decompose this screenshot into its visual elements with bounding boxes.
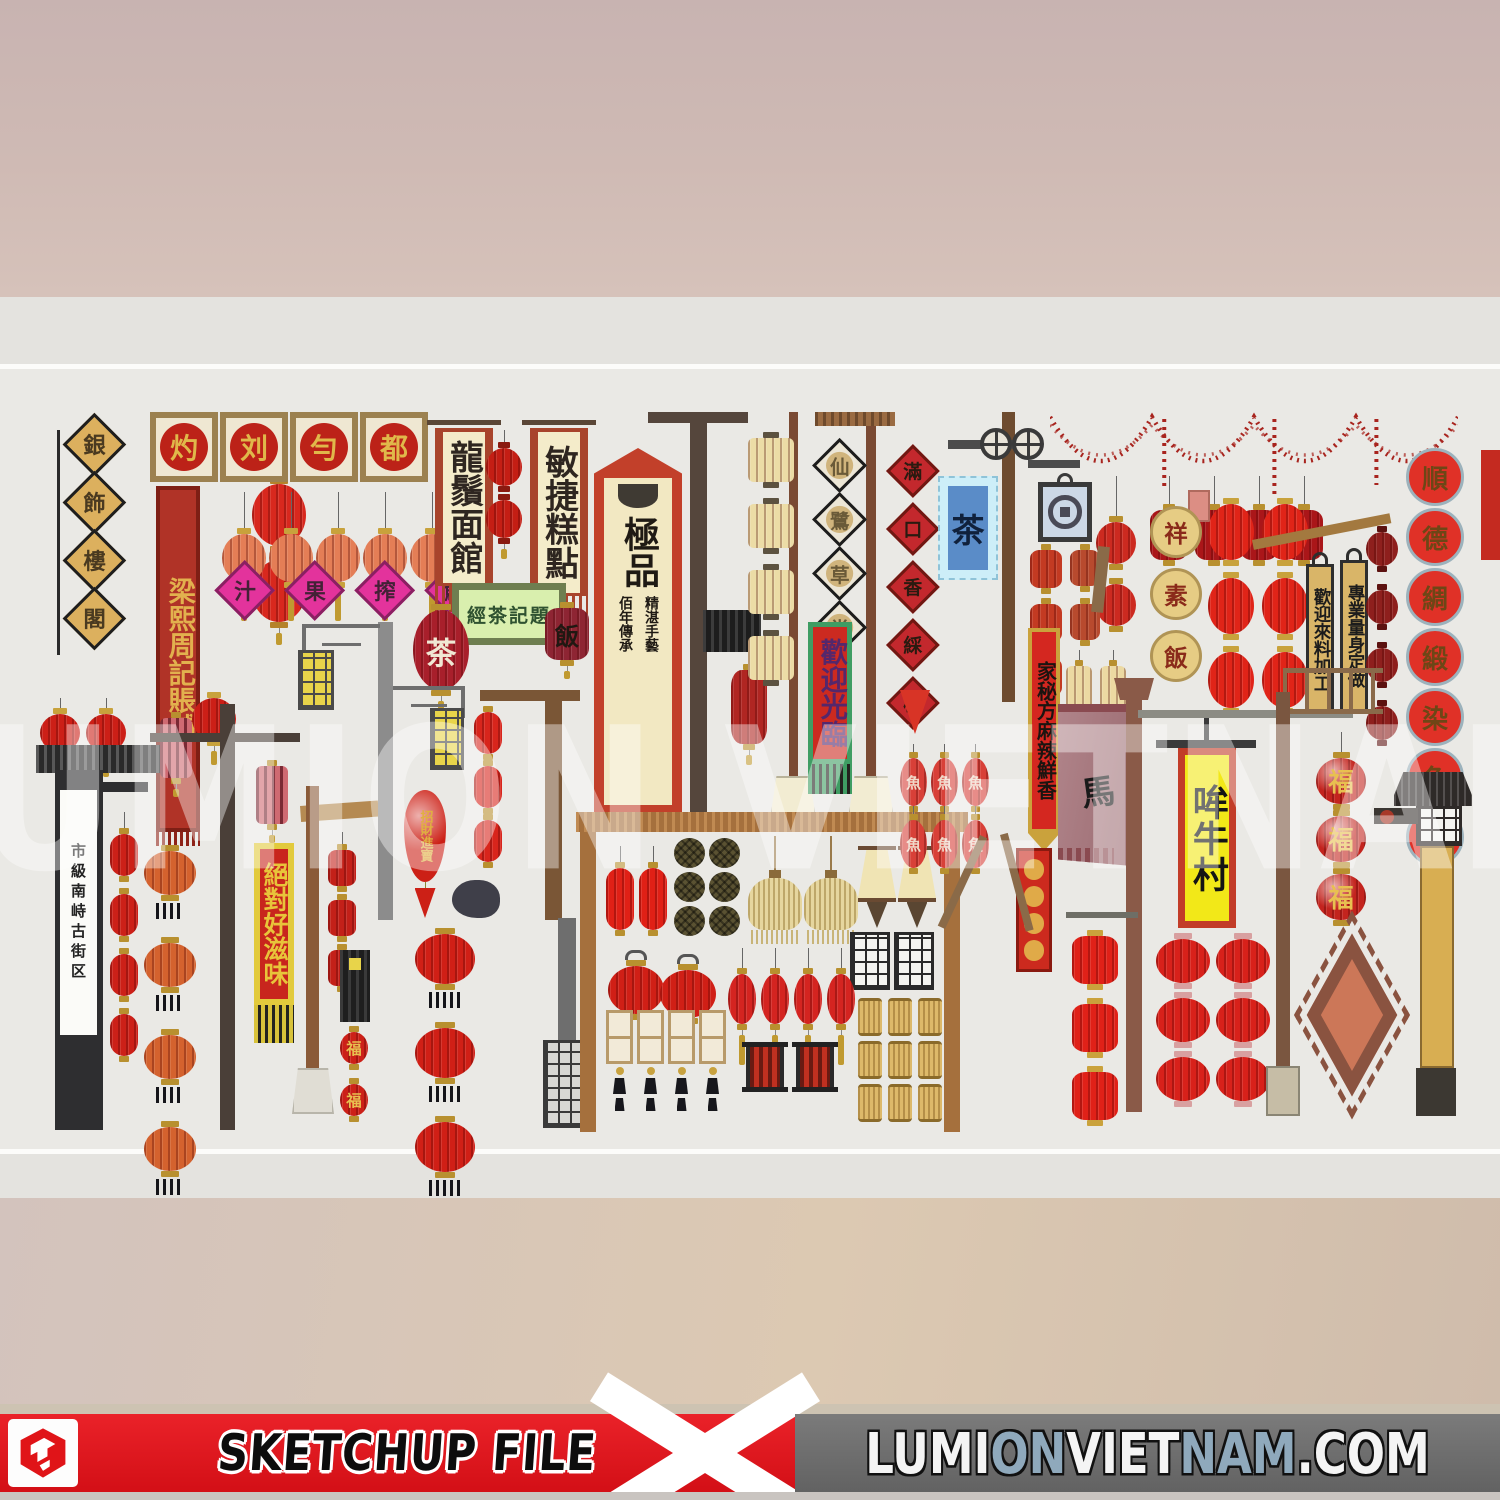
street-tower-arm (100, 782, 148, 792)
pagoda-roof (1394, 772, 1472, 806)
street-tower-panel: 市級南峙古街区 (60, 790, 97, 1035)
ornate-gray-pole (378, 622, 393, 920)
white-cage-pair (850, 932, 934, 990)
page: 銀飾樓閣灼刘勻都梁熙周記賬鋪汁果搾鮮龍鬚面館敏捷糕點經茶記題茶飯極品佰年傳承精湛… (0, 0, 1500, 1500)
brand-part: .COM (1297, 1420, 1430, 1486)
coin-wheel-b (1012, 428, 1044, 460)
right-barrel-chain (1072, 930, 1118, 1126)
pagoda-gold-pole (1420, 846, 1454, 1068)
fringe-chandelier-b (804, 836, 858, 944)
flavor-banner: 絕對好滋味 (254, 843, 294, 1043)
flag-pole (306, 786, 319, 1072)
display-post-left (580, 832, 596, 1132)
tall-brown-pole (1276, 692, 1290, 1070)
trapezoid-lantern-a (858, 846, 896, 928)
ladder-bars (1283, 668, 1383, 714)
teardrop-lantern: 招財進寶 (404, 790, 446, 918)
signal-lamp (340, 950, 370, 1022)
brand-part: NAM (1179, 1420, 1296, 1486)
pumpkin-col-right-b (1216, 933, 1270, 1107)
tall-pole-base (1266, 1066, 1300, 1116)
cage-lantern-b (430, 708, 464, 770)
fringe-chandelier-a (748, 836, 802, 944)
hatched-crossbar (815, 412, 895, 426)
curve-arm-pole (220, 704, 235, 1130)
site-brand: LUMION VIETNAM.COM (795, 1414, 1500, 1492)
bamboo-columns (858, 998, 942, 1122)
banner-hanger-rod (1204, 718, 1209, 742)
paper-box-row (606, 1010, 726, 1111)
pagoda-panel (1416, 806, 1462, 846)
decoration-collection: 銀飾樓閣灼刘勻都梁熙周記賬鋪汁果搾鮮龍鬚面館敏捷糕點經茶記題茶飯極品佰年傳承精湛… (0, 0, 1500, 1500)
carriage-lantern-b (792, 1042, 838, 1092)
flare-pole (1126, 690, 1142, 1112)
orange-pumpkin-chain (144, 845, 196, 1195)
brand-part: ON (990, 1420, 1066, 1486)
premium-craft-banner: 極品佰年傳承精湛手藝 (594, 448, 682, 813)
silver-shop-sign-wire (57, 430, 60, 655)
mini-frame (1066, 912, 1138, 918)
hanging-lantern-small (486, 430, 522, 559)
flag-pole-base (292, 1068, 334, 1114)
pink-striped-lantern-a (160, 712, 192, 797)
tea-blue-banner: 茶 (938, 476, 998, 580)
pink-striped-lantern-b (256, 760, 288, 843)
sketchup-logo-icon (8, 1419, 78, 1487)
brand-part: LUMI (865, 1420, 990, 1486)
mouniu-village-banner: 哞牛村 (1178, 748, 1236, 928)
x-decoration (590, 1414, 820, 1492)
coin-wheel-a (980, 428, 1012, 460)
pagoda-arm-ball (1380, 810, 1394, 824)
brand-part: VIET (1066, 1420, 1179, 1486)
big-pumpkin-chain (415, 928, 475, 1196)
hot-spice-banner: 家秘方麻辣鮮香 (1028, 628, 1060, 863)
rice-shop-lantern: 飯 (545, 602, 589, 679)
cream-cylinder-stack (748, 432, 794, 686)
carriage-lantern-a (742, 1042, 788, 1092)
gallows-arm (480, 690, 580, 701)
signal-lanterns: 福福 (340, 1026, 368, 1122)
display-post-right (944, 832, 960, 1132)
framed-sign-row: 灼刘勻都 (150, 412, 428, 482)
banner-hanger-bar (1156, 740, 1256, 748)
tower-capsule-chain (110, 812, 138, 1062)
green-red-banner: 歡迎光臨 (808, 622, 852, 794)
gallows-pole (545, 690, 562, 920)
capsule-chain-mid (474, 706, 502, 868)
shiny-lantern-chain: 福福福 (1316, 732, 1366, 926)
footer-bottom-strip (0, 1492, 1500, 1500)
edge-red-banner (1481, 450, 1500, 560)
gold-coin-chain: 祥素飯 (1150, 506, 1202, 682)
pagoda-base (1416, 1068, 1456, 1116)
cage-lantern-a (298, 650, 334, 710)
red-oval-column-a (1208, 498, 1254, 714)
footer-title: SKETCHUP FILE (216, 1423, 599, 1482)
capsule-pair-frame (606, 846, 667, 936)
mankou-diamond-chain: 滿口香綵桂 (886, 444, 940, 730)
pedestal-pole (558, 918, 576, 1042)
silver-shop-diamond-chain: 銀飾樓閣 (62, 412, 126, 650)
pumpkin-col-right-a (1156, 933, 1210, 1107)
rattan-diamond-sign (1302, 925, 1402, 1105)
ox-statue (452, 880, 500, 918)
